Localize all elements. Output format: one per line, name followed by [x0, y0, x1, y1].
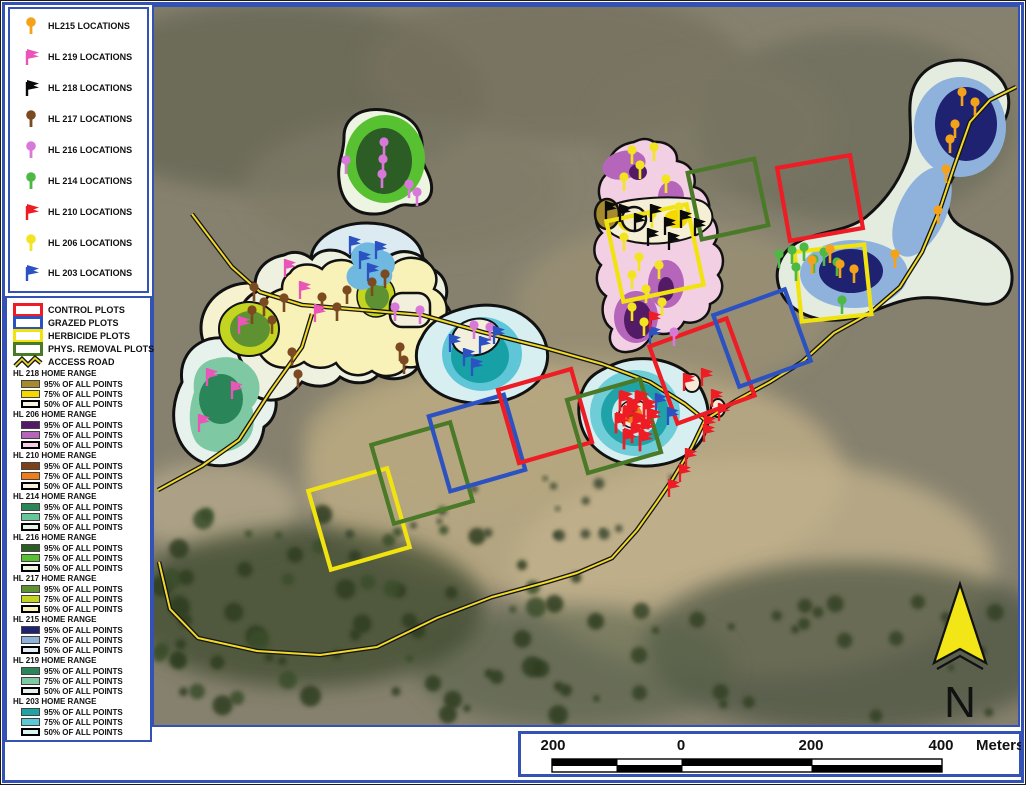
- swatch-label: 75% OF ALL POINTS: [44, 554, 123, 563]
- legend-home-ranges: HL 218 HOME RANGE95% OF ALL POINTS75% OF…: [13, 369, 150, 737]
- legend-label: GRAZED PLOTS: [48, 318, 119, 328]
- swatch: [21, 687, 40, 695]
- herbicide-plot-swatch: [13, 329, 43, 343]
- swatch: [21, 585, 40, 593]
- hl203-flag-icon: [20, 263, 42, 283]
- map-figure-page: N HL215 LOCATIONSHL 219 LOCATIONSHL 218 …: [0, 0, 1026, 785]
- swatch-label: 95% OF ALL POINTS: [44, 585, 123, 594]
- legend-item-hl217-locations: HL 217 LOCATIONS: [10, 109, 147, 129]
- home-range-swatch-row: 50% OF ALL POINTS: [13, 440, 150, 450]
- legend-item-removal: PHYS. REMOVAL PLOTS: [13, 342, 150, 355]
- legend-label: PHYS. REMOVAL PLOTS: [48, 344, 154, 354]
- legend-label: HL215 LOCATIONS: [48, 21, 130, 31]
- hl210-flag-icon: [20, 202, 42, 222]
- legend-label: HL 206 LOCATIONS: [48, 238, 132, 248]
- home-range-swatch-row: 75% OF ALL POINTS: [13, 512, 150, 522]
- legend-item-grazed: GRAZED PLOTS: [13, 316, 150, 329]
- home-range-swatch-row: 75% OF ALL POINTS: [13, 717, 150, 727]
- swatch: [21, 380, 40, 388]
- legend-item-hl218-locations: HL 218 LOCATIONS: [10, 78, 147, 98]
- access-road-icon: [13, 355, 43, 369]
- legend-item-hl215-locations: HL215 LOCATIONS: [10, 16, 147, 36]
- swatch-label: 75% OF ALL POINTS: [44, 677, 123, 686]
- swatch: [21, 554, 40, 562]
- home-range-swatch-row: 50% OF ALL POINTS: [13, 604, 150, 614]
- swatch-label: 95% OF ALL POINTS: [44, 380, 123, 389]
- hl216-pin-icon: [20, 140, 42, 160]
- swatch: [21, 564, 40, 572]
- hl217-pin-icon: [20, 109, 42, 129]
- swatch-label: 75% OF ALL POINTS: [44, 595, 123, 604]
- swatch-label: 50% OF ALL POINTS: [44, 605, 123, 614]
- home-range-swatch-row: 95% OF ALL POINTS: [13, 625, 150, 635]
- legend-label: HL 216 LOCATIONS: [48, 145, 132, 155]
- swatch: [21, 646, 40, 654]
- scale-label: 200: [540, 737, 565, 754]
- legend-label: HL 214 LOCATIONS: [48, 176, 132, 186]
- swatch: [21, 605, 40, 613]
- home-range-group: HL 210 HOME RANGE95% OF ALL POINTS75% OF…: [13, 451, 150, 491]
- home-range-swatch-row: 50% OF ALL POINTS: [13, 399, 150, 409]
- home-range-swatch-row: 75% OF ALL POINTS: [13, 635, 150, 645]
- home-range-group: HL 217 HOME RANGE95% OF ALL POINTS75% OF…: [13, 574, 150, 614]
- swatch: [21, 431, 40, 439]
- swatch: [21, 677, 40, 685]
- home-range-swatch-row: 75% OF ALL POINTS: [13, 389, 150, 399]
- legend-plots: CONTROL PLOTSGRAZED PLOTSHERBICIDE PLOTS…: [13, 303, 150, 368]
- swatch: [21, 636, 40, 644]
- swatch: [21, 421, 40, 429]
- map-canvas: N: [154, 7, 1018, 725]
- home-range-swatch-row: 75% OF ALL POINTS: [13, 553, 150, 563]
- home-range-title: HL 203 HOME RANGE: [13, 697, 150, 707]
- hl214-pin-icon: [20, 171, 42, 191]
- home-range-swatch-row: 95% OF ALL POINTS: [13, 379, 150, 389]
- home-range-swatch-row: 95% OF ALL POINTS: [13, 707, 150, 717]
- legend-label: CONTROL PLOTS: [48, 305, 125, 315]
- home-range-group: HL 216 HOME RANGE95% OF ALL POINTS75% OF…: [13, 533, 150, 573]
- legend-plots-and-home-ranges: CONTROL PLOTSGRAZED PLOTSHERBICIDE PLOTS…: [5, 296, 152, 742]
- removal-plot-swatch: [13, 342, 43, 356]
- home-range-group: HL 218 HOME RANGE95% OF ALL POINTS75% OF…: [13, 369, 150, 409]
- swatch-label: 95% OF ALL POINTS: [44, 667, 123, 676]
- scale-label: 0: [677, 737, 685, 754]
- legend-item-hl206-locations: HL 206 LOCATIONS: [10, 233, 147, 253]
- satellite-map: N: [152, 5, 1020, 727]
- home-range-title: HL 210 HOME RANGE: [13, 451, 150, 461]
- legend-label: HL 203 LOCATIONS: [48, 268, 132, 278]
- swatch-label: 75% OF ALL POINTS: [44, 718, 123, 727]
- legend-label: HERBICIDE PLOTS: [48, 331, 130, 341]
- legend-label: HL 217 LOCATIONS: [48, 114, 132, 124]
- swatch: [21, 441, 40, 449]
- home-range-title: HL 214 HOME RANGE: [13, 492, 150, 502]
- home-range-swatch-row: 50% OF ALL POINTS: [13, 522, 150, 532]
- home-range-title: HL 217 HOME RANGE: [13, 574, 150, 584]
- home-range-swatch-row: 50% OF ALL POINTS: [13, 686, 150, 696]
- home-range-swatch-row: 75% OF ALL POINTS: [13, 594, 150, 604]
- swatch-label: 75% OF ALL POINTS: [44, 390, 123, 399]
- swatch-label: 95% OF ALL POINTS: [44, 421, 123, 430]
- swatch: [21, 482, 40, 490]
- swatch-label: 50% OF ALL POINTS: [44, 646, 123, 655]
- home-range-title: HL 206 HOME RANGE: [13, 410, 150, 420]
- swatch: [21, 513, 40, 521]
- hl218-flag-icon: [20, 78, 42, 98]
- swatch-label: 50% OF ALL POINTS: [44, 400, 123, 409]
- swatch: [21, 708, 40, 716]
- swatch-label: 75% OF ALL POINTS: [44, 636, 123, 645]
- swatch-label: 75% OF ALL POINTS: [44, 472, 123, 481]
- home-range-swatch-row: 75% OF ALL POINTS: [13, 471, 150, 481]
- grazed-plot-swatch: [13, 316, 43, 330]
- home-range-group: HL 203 HOME RANGE95% OF ALL POINTS75% OF…: [13, 697, 150, 737]
- home-range-swatch-row: 95% OF ALL POINTS: [13, 543, 150, 553]
- home-range-title: HL 219 HOME RANGE: [13, 656, 150, 666]
- swatch-label: 50% OF ALL POINTS: [44, 441, 123, 450]
- swatch-label: 95% OF ALL POINTS: [44, 544, 123, 553]
- home-range-swatch-row: 50% OF ALL POINTS: [13, 727, 150, 737]
- home-range-swatch-row: 50% OF ALL POINTS: [13, 481, 150, 491]
- home-range-group: HL 214 HOME RANGE95% OF ALL POINTS75% OF…: [13, 492, 150, 532]
- home-range-swatch-row: 95% OF ALL POINTS: [13, 666, 150, 676]
- swatch: [21, 595, 40, 603]
- home-range-swatch-row: 50% OF ALL POINTS: [13, 645, 150, 655]
- swatch-label: 95% OF ALL POINTS: [44, 503, 123, 512]
- swatch: [21, 728, 40, 736]
- legend-label: HL 210 LOCATIONS: [48, 207, 132, 217]
- swatch-label: 50% OF ALL POINTS: [44, 482, 123, 491]
- swatch-label: 50% OF ALL POINTS: [44, 523, 123, 532]
- swatch: [21, 667, 40, 675]
- home-range-group: HL 215 HOME RANGE95% OF ALL POINTS75% OF…: [13, 615, 150, 655]
- swatch: [21, 400, 40, 408]
- swatch: [21, 472, 40, 480]
- swatch-label: 75% OF ALL POINTS: [44, 513, 123, 522]
- home-range-swatch-row: 95% OF ALL POINTS: [13, 584, 150, 594]
- svg-text:N: N: [944, 678, 976, 725]
- home-range-title: HL 215 HOME RANGE: [13, 615, 150, 625]
- legend-locations: HL215 LOCATIONSHL 219 LOCATIONSHL 218 LO…: [8, 7, 149, 293]
- swatch-label: 50% OF ALL POINTS: [44, 687, 123, 696]
- swatch: [21, 462, 40, 470]
- swatch-label: 95% OF ALL POINTS: [44, 708, 123, 717]
- legend-label: ACCESS ROAD: [48, 357, 115, 367]
- control-plot-swatch: [13, 303, 43, 317]
- swatch-label: 95% OF ALL POINTS: [44, 462, 123, 471]
- legend-item-hl210-locations: HL 210 LOCATIONS: [10, 202, 147, 222]
- home-range-swatch-row: 50% OF ALL POINTS: [13, 563, 150, 573]
- legend-label: HL 218 LOCATIONS: [48, 83, 132, 93]
- swatch: [21, 626, 40, 634]
- home-range-swatch-row: 75% OF ALL POINTS: [13, 676, 150, 686]
- hl219-flag-icon: [20, 47, 42, 67]
- home-range-group: HL 219 HOME RANGE95% OF ALL POINTS75% OF…: [13, 656, 150, 696]
- home-range-swatch-row: 95% OF ALL POINTS: [13, 502, 150, 512]
- swatch-label: 75% OF ALL POINTS: [44, 431, 123, 440]
- legend-item-hl203-locations: HL 203 LOCATIONS: [10, 263, 147, 283]
- hl206-pin-icon: [20, 233, 42, 253]
- home-range-group: HL 206 HOME RANGE95% OF ALL POINTS75% OF…: [13, 410, 150, 450]
- swatch: [21, 718, 40, 726]
- swatch: [21, 390, 40, 398]
- home-range-title: HL 218 HOME RANGE: [13, 369, 150, 379]
- swatch-label: 50% OF ALL POINTS: [44, 564, 123, 573]
- swatch: [21, 523, 40, 531]
- scale-unit-label: Meters: [976, 737, 1024, 754]
- legend-item-herbicide: HERBICIDE PLOTS: [13, 329, 150, 342]
- home-range-title: HL 216 HOME RANGE: [13, 533, 150, 543]
- legend-item-access-road: ACCESS ROAD: [13, 355, 150, 368]
- legend-item-hl214-locations: HL 214 LOCATIONS: [10, 171, 147, 191]
- home-range-swatch-row: 75% OF ALL POINTS: [13, 430, 150, 440]
- swatch-label: 95% OF ALL POINTS: [44, 626, 123, 635]
- legend-item-hl219-locations: HL 219 LOCATIONS: [10, 47, 147, 67]
- swatch: [21, 544, 40, 552]
- legend-item-control: CONTROL PLOTS: [13, 303, 150, 316]
- scale-label: 200: [798, 737, 823, 754]
- swatch: [21, 503, 40, 511]
- scale-bar-graphic: [551, 758, 943, 774]
- home-range-swatch-row: 95% OF ALL POINTS: [13, 420, 150, 430]
- swatch-label: 50% OF ALL POINTS: [44, 728, 123, 737]
- legend-item-hl216-locations: HL 216 LOCATIONS: [10, 140, 147, 160]
- legend-label: HL 219 LOCATIONS: [48, 52, 132, 62]
- home-range-swatch-row: 95% OF ALL POINTS: [13, 461, 150, 471]
- scale-label: 400: [928, 737, 953, 754]
- scale-bar: Meters 2000200400: [518, 731, 1022, 777]
- hl215-pin-icon: [20, 16, 42, 36]
